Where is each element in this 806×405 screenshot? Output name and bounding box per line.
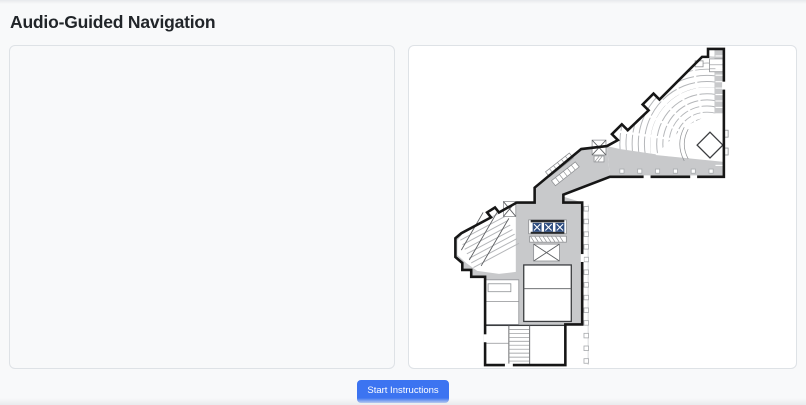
elevator-cars [533, 223, 565, 232]
junction-stair-box [592, 140, 606, 162]
instructions-panel [9, 45, 395, 369]
page-top-edge [0, 0, 806, 4]
page-title: Audio-Guided Navigation [10, 12, 215, 33]
map-panel [408, 45, 797, 369]
start-instructions-button[interactable]: Start Instructions [357, 380, 448, 403]
lower-block-rooms [485, 265, 571, 365]
footer-bar: Start Instructions [0, 375, 806, 405]
floorplan-svg [409, 46, 796, 368]
